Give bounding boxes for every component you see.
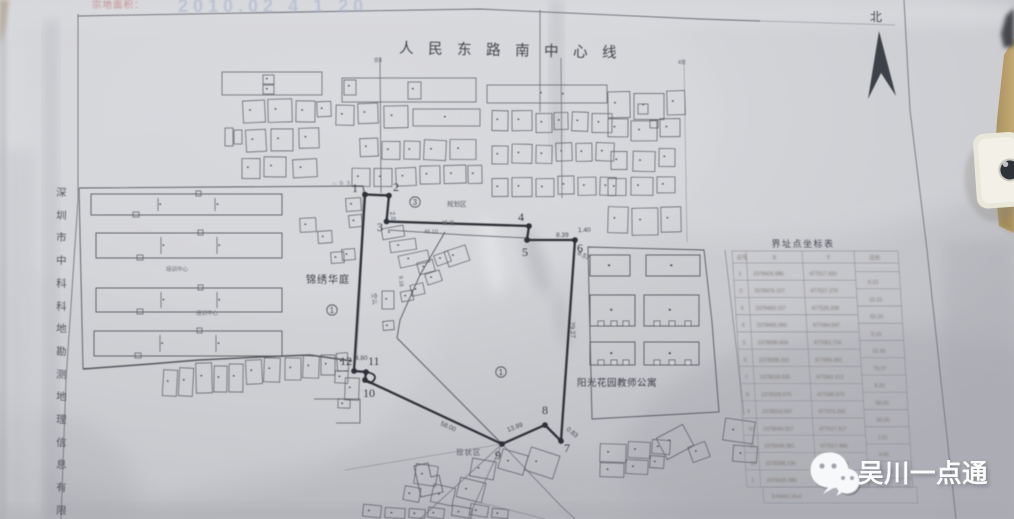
- svg-text:2: 2: [739, 289, 742, 295]
- svg-text:有: 有: [56, 481, 67, 494]
- svg-text:2378426.986: 2378426.986: [753, 271, 784, 277]
- svg-text:477517.317: 477517.317: [819, 427, 847, 433]
- svg-text:宗4: 宗4: [374, 57, 382, 64]
- svg-text:息: 息: [56, 458, 67, 471]
- svg-text:点号: 点号: [736, 255, 748, 262]
- svg-text:2378044.927: 2378044.927: [763, 427, 794, 433]
- svg-text:10: 10: [748, 427, 754, 433]
- svg-text:5: 5: [743, 340, 746, 346]
- svg-text:8: 8: [746, 392, 749, 398]
- svg-text:边长: 边长: [869, 254, 881, 262]
- svg-text:勘: 勘: [56, 346, 67, 358]
- svg-text:10.30: 10.30: [872, 349, 885, 355]
- svg-text:3: 3: [377, 220, 383, 234]
- svg-text:9: 9: [747, 409, 750, 415]
- svg-text:79.27: 79.27: [568, 322, 576, 339]
- svg-text:限: 限: [56, 505, 67, 517]
- svg-text:2378328.979: 2378328.979: [761, 392, 792, 398]
- svg-text:圳: 圳: [56, 210, 67, 222]
- svg-text:现状区: 现状区: [456, 447, 482, 457]
- svg-text:深: 深: [56, 187, 67, 199]
- svg-text:11: 11: [749, 444, 755, 450]
- svg-text:58.00: 58.00: [875, 401, 888, 407]
- svg-text:锦绣华庭: 锦绣华庭: [306, 273, 350, 286]
- svg-text:5: 5: [522, 245, 528, 259]
- svg-text:宗地面积：: 宗地面积：: [92, 0, 145, 11]
- svg-text:2378476.107: 2378476.107: [754, 289, 785, 295]
- svg-text:X: X: [772, 256, 776, 262]
- svg-text:2378398.136: 2378398.136: [765, 461, 796, 467]
- svg-text:S=6442.16㎡: S=6442.16㎡: [771, 492, 803, 500]
- svg-text:4: 4: [518, 210, 524, 224]
- svg-text:9.18: 9.18: [397, 276, 404, 287]
- svg-text:12: 12: [340, 354, 352, 368]
- svg-text:吴川一点通: 吴川一点通: [858, 460, 988, 488]
- svg-text:2378465.060: 2378465.060: [757, 323, 788, 329]
- svg-text:477064.547: 477064.547: [813, 323, 841, 329]
- svg-text:1: 1: [499, 368, 504, 377]
- svg-text:50.00: 50.00: [877, 418, 890, 424]
- svg-text:2378014.947: 2378014.947: [762, 409, 793, 415]
- svg-text:城 用: 城 用: [442, 220, 455, 227]
- svg-text:北: 北: [870, 10, 882, 24]
- svg-text:9: 9: [495, 448, 501, 462]
- svg-text:9.10: 9.10: [868, 280, 879, 286]
- svg-text:477063.724: 477063.724: [814, 340, 842, 346]
- svg-text:市: 市: [56, 231, 67, 244]
- svg-text:477665.062: 477665.062: [815, 358, 843, 364]
- svg-text:7: 7: [745, 375, 748, 381]
- svg-text:79.27: 79.27: [873, 366, 886, 372]
- svg-text:2378469.107: 2378469.107: [755, 306, 786, 312]
- svg-text:10.10: 10.10: [869, 297, 882, 303]
- svg-text:477526.208: 477526.208: [811, 306, 839, 312]
- svg-text:Y: Y: [826, 256, 830, 262]
- svg-text:477517.920: 477517.920: [809, 271, 837, 277]
- svg-text:10: 10: [363, 386, 375, 400]
- svg-text:5.10: 5.10: [871, 332, 882, 338]
- svg-text:12: 12: [750, 461, 756, 467]
- svg-text:1.51: 1.51: [878, 435, 889, 441]
- svg-text:46.10: 46.10: [424, 229, 438, 235]
- svg-text:规划区: 规划区: [447, 199, 467, 208]
- svg-text:阳光花园教师公寓: 阳光花园教师公寓: [577, 377, 657, 389]
- svg-text:2: 2: [393, 180, 399, 194]
- svg-text:50.10: 50.10: [870, 315, 883, 321]
- svg-text:6: 6: [744, 358, 747, 364]
- svg-text:477045.670: 477045.670: [817, 392, 845, 398]
- svg-text:地: 地: [56, 390, 67, 403]
- svg-text:4宗: 4宗: [678, 59, 686, 66]
- svg-text:○93: ○93: [332, 181, 353, 188]
- svg-text:11: 11: [368, 354, 380, 368]
- svg-text:信: 信: [56, 437, 67, 449]
- svg-text:2378018.935: 2378018.935: [760, 375, 791, 381]
- svg-text:培训中心: 培训中心: [196, 309, 219, 317]
- svg-text:477517.466: 477517.466: [820, 444, 848, 450]
- svg-text:1: 1: [751, 478, 754, 484]
- svg-text:1: 1: [738, 271, 741, 277]
- svg-text:培训中心: 培训中心: [166, 265, 189, 273]
- svg-text:1.40: 1.40: [578, 227, 591, 234]
- svg-text:2378348.381: 2378348.381: [764, 444, 795, 450]
- svg-text:477063.213: 477063.213: [816, 375, 844, 381]
- svg-text:8: 8: [542, 403, 548, 417]
- svg-text:2010.02 4 1 20: 2010.02 4 1 20: [178, 0, 368, 16]
- svg-text:3: 3: [740, 306, 743, 312]
- svg-text:1: 1: [330, 306, 335, 315]
- svg-text:科: 科: [56, 300, 67, 313]
- svg-text:中: 中: [56, 254, 67, 267]
- svg-text:477370.202: 477370.202: [818, 409, 846, 415]
- svg-text:8.39: 8.39: [556, 232, 569, 239]
- svg-text:4.80: 4.80: [355, 355, 368, 362]
- svg-text:测: 测: [56, 368, 67, 381]
- svg-text:477527.270: 477527.270: [810, 289, 838, 295]
- svg-text:7: 7: [564, 441, 570, 455]
- svg-text:8.20: 8.20: [874, 383, 885, 389]
- svg-text:2378426.986: 2378426.986: [766, 478, 797, 484]
- svg-text:2378098.310: 2378098.310: [759, 358, 790, 364]
- svg-text:界址点坐标表: 界址点坐标表: [771, 238, 835, 249]
- svg-text:2378096.604: 2378096.604: [758, 340, 789, 346]
- svg-text:3: 3: [413, 198, 418, 207]
- svg-text:地: 地: [56, 322, 67, 335]
- svg-text:4.80: 4.80: [879, 452, 890, 458]
- svg-text:理: 理: [56, 414, 67, 426]
- svg-text:4: 4: [742, 323, 745, 329]
- svg-text:科: 科: [56, 277, 67, 290]
